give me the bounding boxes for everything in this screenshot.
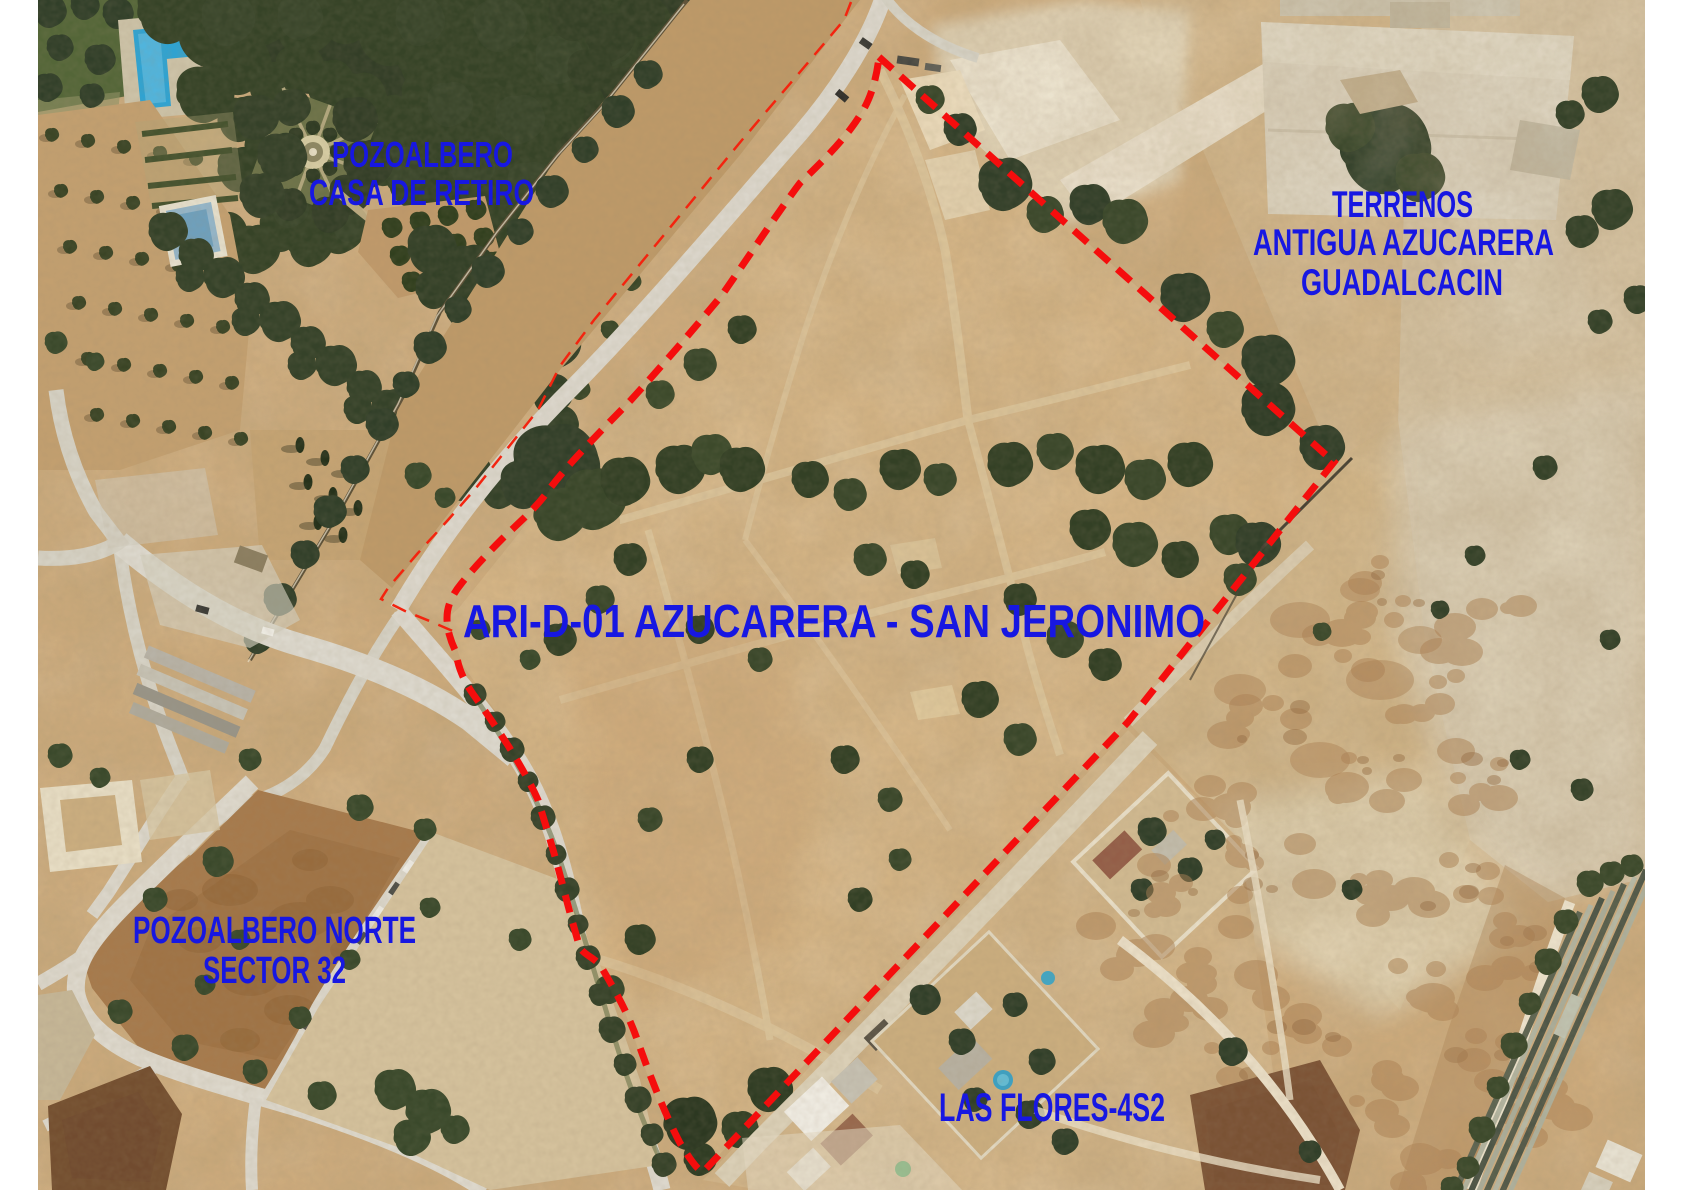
svg-text:TERRENOS: TERRENOS [1332,184,1473,225]
svg-text:ARI-D-01 AZUCARERA - SAN JERON: ARI-D-01 AZUCARERA - SAN JERONIMO [463,595,1205,647]
svg-text:POZOALBERO: POZOALBERO [332,134,513,175]
svg-text:SECTOR 32: SECTOR 32 [203,950,346,992]
svg-text:GUADALCACIN: GUADALCACIN [1301,262,1503,303]
svg-text:ANTIGUA AZUCARERA: ANTIGUA AZUCARERA [1253,222,1554,263]
svg-text:POZOALBERO NORTE: POZOALBERO NORTE [133,910,416,952]
svg-text:LAS FLORES-4S2: LAS FLORES-4S2 [939,1086,1165,1130]
svg-text:CASA DE RETIRO: CASA DE RETIRO [309,172,534,213]
